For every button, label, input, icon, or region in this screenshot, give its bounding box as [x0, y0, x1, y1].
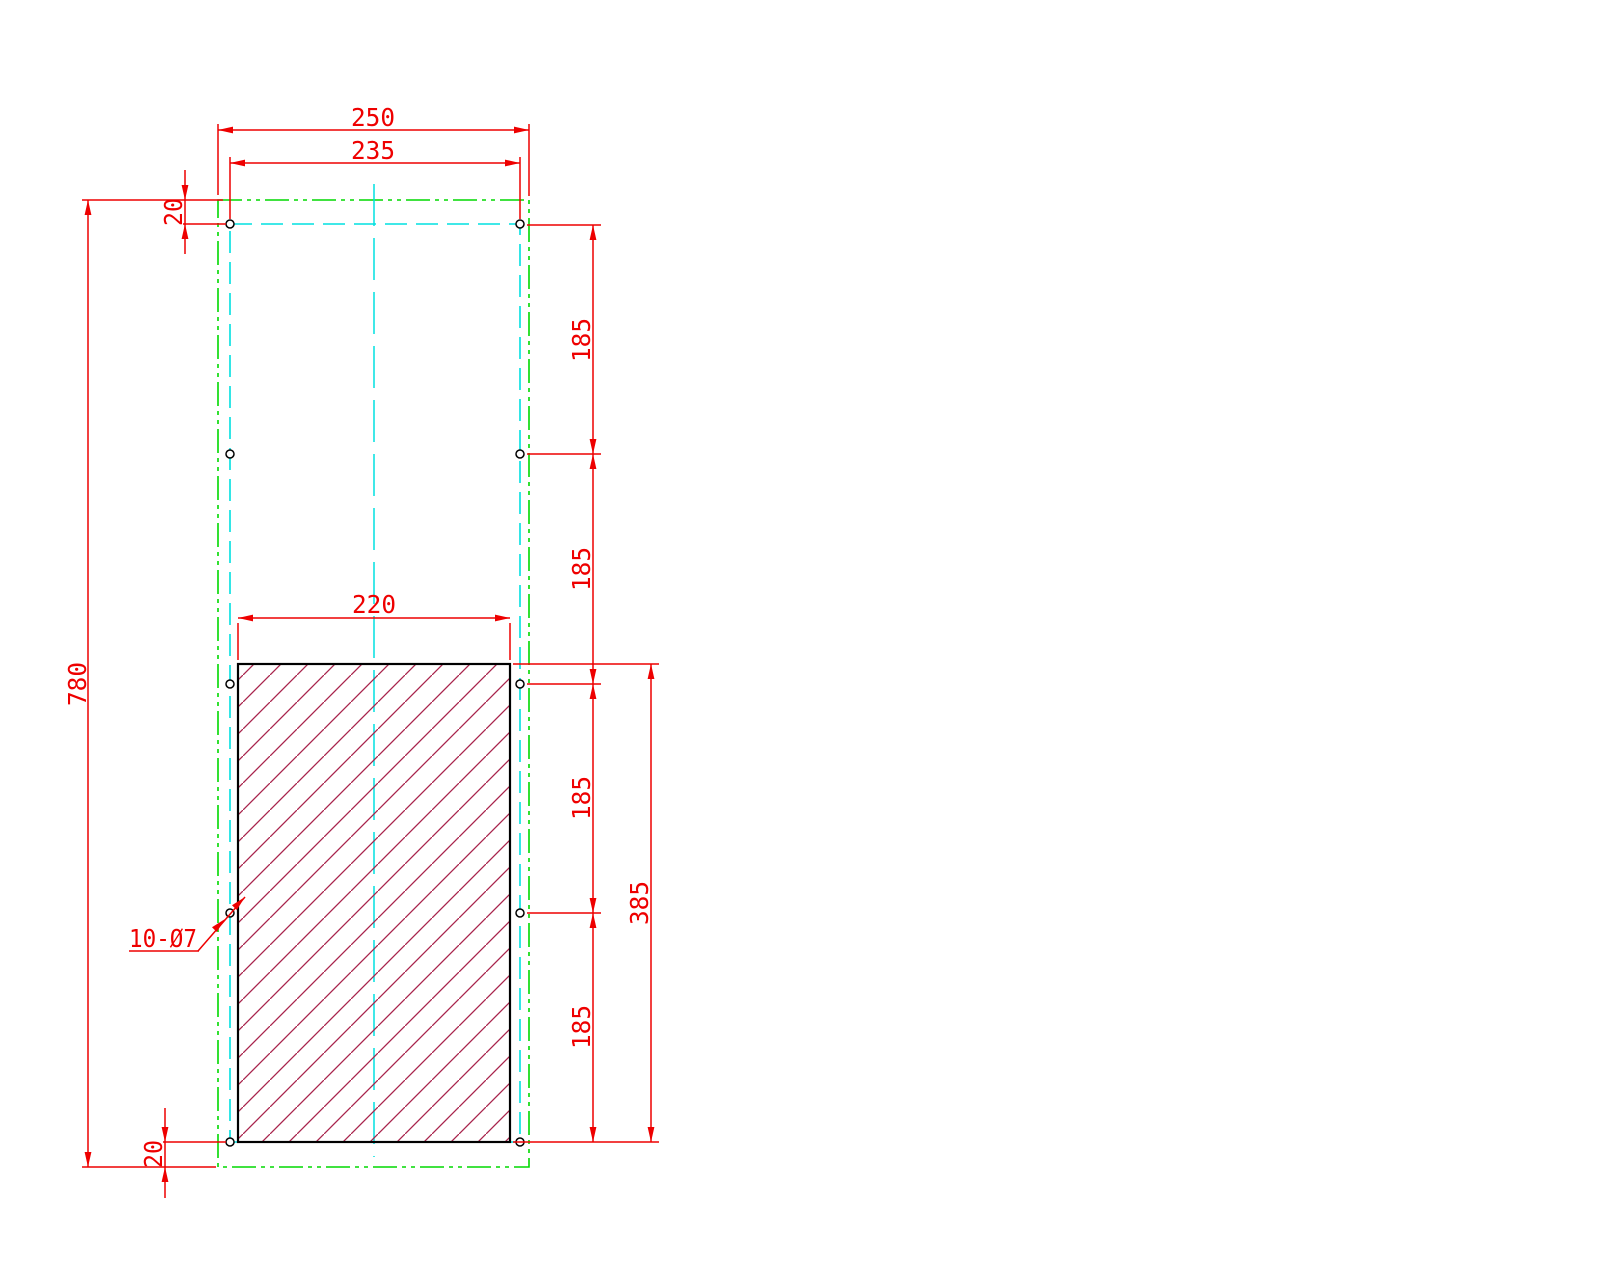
- dimension-text: 20: [139, 1140, 168, 1168]
- arrowhead: [648, 664, 655, 679]
- hole: [516, 909, 524, 917]
- dimension-text: 235: [351, 136, 395, 165]
- dimension-text: 780: [63, 662, 92, 706]
- dimension-text: 20: [159, 198, 188, 226]
- arrowhead: [495, 615, 510, 622]
- arrowhead: [590, 684, 597, 699]
- arrowhead: [590, 898, 597, 913]
- dim-hole-pitch-chain: 185 185 185 185: [527, 225, 601, 1142]
- dim-overall-height: 780: [63, 200, 223, 1167]
- hole: [516, 680, 524, 688]
- dimension-text: 185: [567, 318, 596, 362]
- arrowhead: [85, 200, 92, 215]
- arrowhead: [238, 615, 253, 622]
- dimension-text: 185: [567, 1005, 596, 1049]
- cutout-hatched-area: [238, 664, 510, 1142]
- engineering-drawing: 250 235 20 780 20: [0, 0, 1600, 1280]
- hole: [516, 220, 524, 228]
- arrowhead: [85, 1152, 92, 1167]
- dimension-text: 250: [351, 103, 395, 132]
- arrowhead: [182, 185, 189, 200]
- dim-bottom-margin: 20: [139, 1108, 226, 1198]
- arrowhead: [590, 669, 597, 684]
- hole: [226, 1138, 234, 1146]
- arrowhead: [514, 127, 529, 134]
- dim-hole-span-width: 235: [230, 136, 520, 219]
- arrowhead: [590, 439, 597, 454]
- hole-callout-text: 10-Ø7: [129, 924, 197, 953]
- hole: [516, 450, 524, 458]
- dim-top-margin: 20: [159, 170, 226, 254]
- arrowhead: [218, 127, 233, 134]
- dim-cutout-height: 385: [513, 664, 659, 1142]
- hole: [226, 450, 234, 458]
- arrowhead: [162, 1127, 169, 1142]
- arrowhead: [162, 1167, 169, 1182]
- arrowhead: [590, 454, 597, 469]
- hole: [226, 220, 234, 228]
- arrowhead: [590, 1127, 597, 1142]
- arrowhead: [230, 160, 245, 167]
- arrowhead: [648, 1127, 655, 1142]
- hole: [226, 680, 234, 688]
- dimension-text: 185: [567, 776, 596, 820]
- drawing-canvas: 250 235 20 780 20: [0, 0, 1600, 1280]
- arrowhead: [505, 160, 520, 167]
- dimension-text: 220: [352, 590, 396, 619]
- dimension-text: 385: [625, 881, 654, 925]
- arrowhead: [590, 913, 597, 928]
- arrowhead: [590, 225, 597, 240]
- dimension-text: 185: [567, 547, 596, 591]
